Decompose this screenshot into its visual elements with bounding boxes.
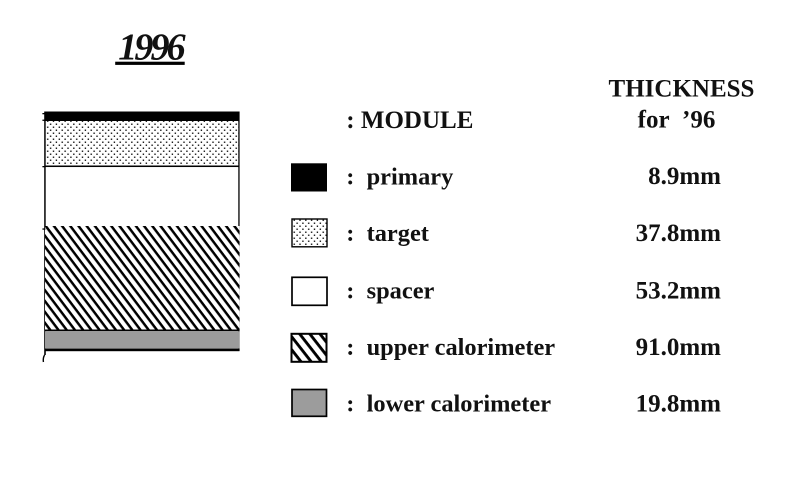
svg-text:: MODULE: : MODULE — [346, 107, 473, 134]
svg-text:: primary: : primary — [346, 164, 453, 191]
svg-text:THICKNESS: THICKNESS — [609, 76, 755, 103]
svg-text:for ’96: for ’96 — [638, 107, 716, 134]
svg-text:8.9mm: 8.9mm — [648, 163, 721, 190]
svg-text:: lower calorimeter: : lower calorimeter — [346, 391, 551, 418]
svg-text:: target: : target — [346, 220, 429, 247]
svg-text:37.8mm: 37.8mm — [636, 220, 722, 247]
svg-text:53.2mm: 53.2mm — [636, 277, 722, 304]
svg-text:19.8mm: 19.8mm — [636, 391, 722, 418]
svg-text:91.0mm: 91.0mm — [636, 334, 722, 361]
svg-text:: spacer: : spacer — [346, 277, 434, 304]
svg-text:: upper calorimeter: : upper calorimeter — [346, 334, 555, 361]
